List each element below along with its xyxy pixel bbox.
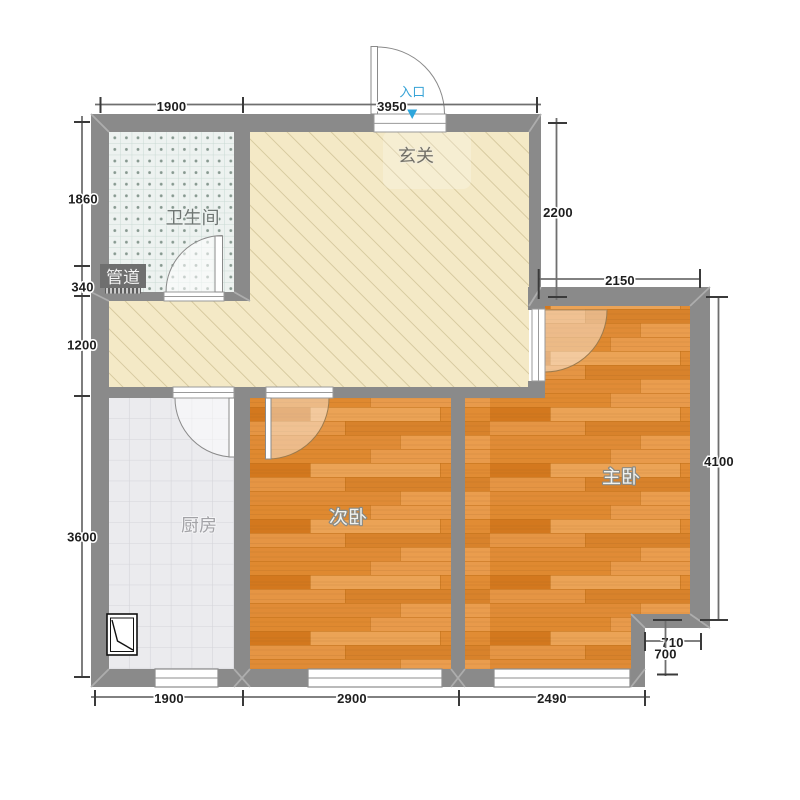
svg-text:700: 700: [654, 647, 676, 662]
svg-text:1900: 1900: [154, 691, 184, 706]
svg-text:4100: 4100: [704, 454, 734, 469]
svg-text:1200: 1200: [67, 338, 97, 353]
svg-text:3950: 3950: [377, 99, 407, 114]
svg-text:2900: 2900: [337, 691, 367, 706]
svg-text:2200: 2200: [543, 205, 573, 220]
svg-text:2490: 2490: [537, 691, 567, 706]
svg-text:1860: 1860: [68, 192, 98, 207]
svg-text:1900: 1900: [157, 99, 187, 114]
svg-text:2150: 2150: [605, 273, 635, 288]
svg-text:340: 340: [71, 280, 93, 295]
svg-text:3600: 3600: [67, 530, 97, 545]
